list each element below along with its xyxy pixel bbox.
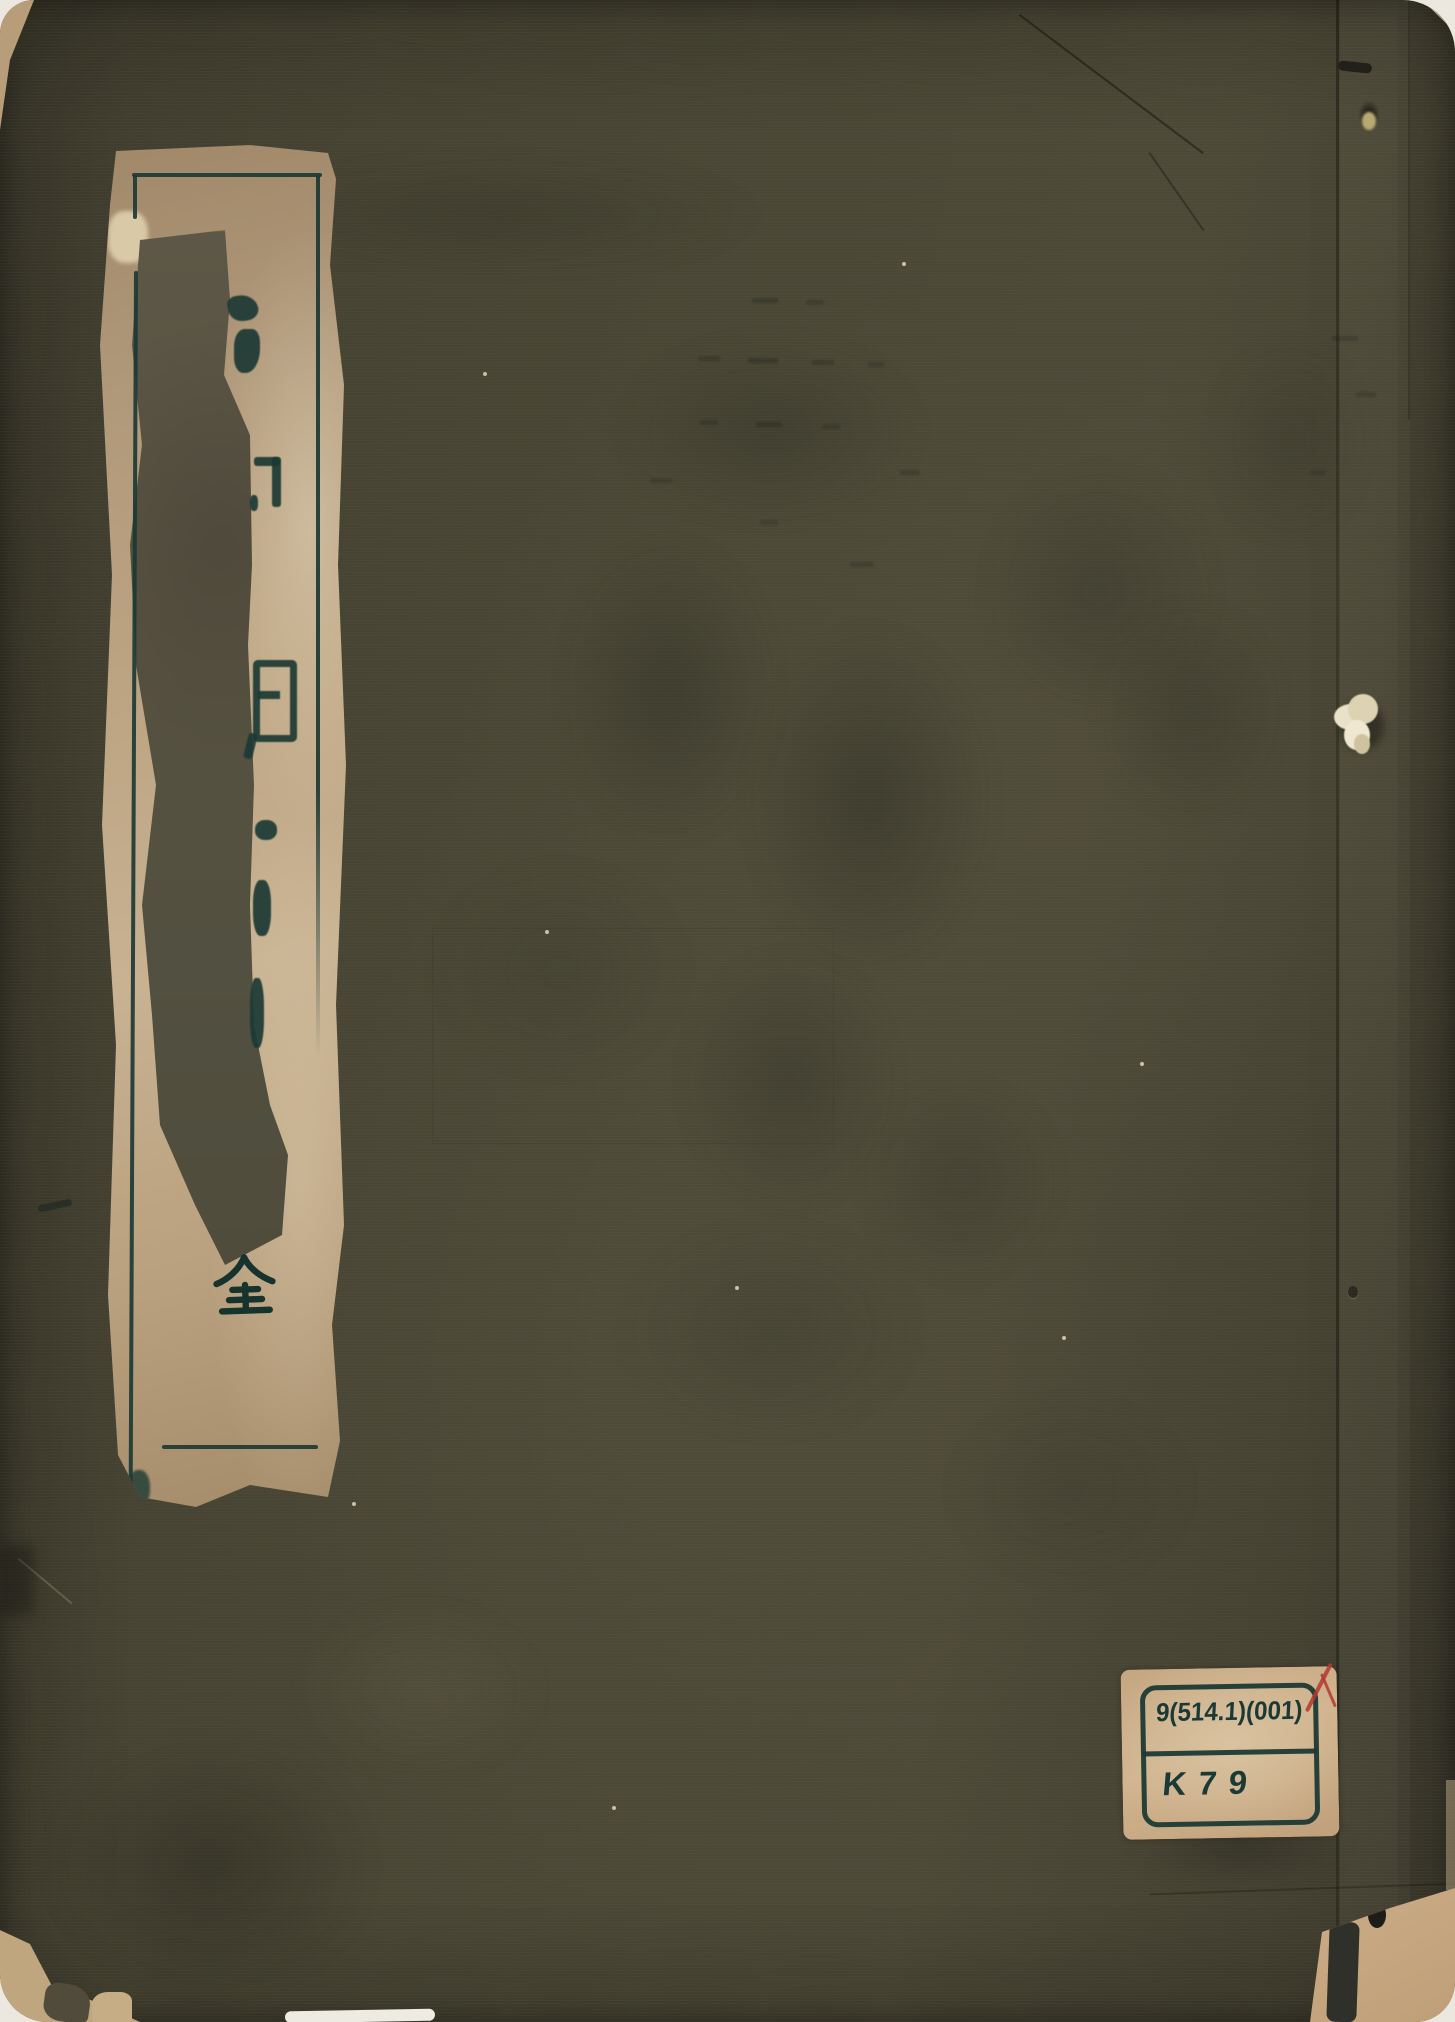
ghost-dash: [868, 362, 884, 367]
stain: [900, 1360, 1240, 1620]
label-border-left: [129, 271, 138, 1507]
ink-fragment: [234, 329, 260, 373]
label-abraded-area: [120, 230, 320, 1270]
title-label-strip: [100, 145, 350, 1507]
ink-fragment: [255, 820, 277, 840]
page-impression-outline: [432, 928, 834, 1144]
label-border-left-upper: [133, 175, 137, 219]
binding-hole-mid: [1348, 1286, 1358, 1298]
edge-crease-line: [1408, 0, 1410, 420]
bottom-edge-sliver: [285, 2009, 435, 2022]
ghost-dash: [822, 424, 840, 429]
ink-fragment: [253, 660, 297, 742]
quan-character: [211, 1252, 279, 1316]
book-cover: 9(514.1)(001) K79: [0, 0, 1455, 2022]
binding-stitch-bottom: [1326, 1922, 1359, 2022]
ghost-dash: [650, 478, 672, 483]
paper-speck: [612, 1806, 616, 1810]
ink-fragment: [250, 978, 264, 1048]
thread-blob: [1348, 694, 1378, 724]
paper-speck: [483, 372, 487, 376]
binding-tuft-small: [1362, 112, 1376, 130]
edge-wear-sliver: [1446, 1780, 1455, 1890]
spine-crease-highlight: [1340, 0, 1410, 2022]
paper-speck: [352, 1502, 356, 1506]
ink-fragment: [226, 293, 260, 324]
label-border-bottom: [162, 1445, 318, 1449]
ghost-dash: [756, 422, 782, 427]
binding-thread-tuft: [1334, 694, 1386, 756]
ink-fragment: [250, 495, 258, 511]
edge-smudge: [0, 1545, 34, 1615]
ghost-dash: [698, 356, 720, 361]
stain: [0, 1700, 420, 2022]
ghost-dash: [812, 360, 834, 365]
label-border-right: [316, 175, 320, 1055]
ink-fragment: [253, 880, 271, 936]
call-number-line1: 9(514.1)(001): [1128, 1694, 1330, 1729]
scanner-background: 9(514.1)(001) K79: [0, 0, 1455, 2022]
paper-speck: [1062, 1336, 1066, 1340]
ghost-dash: [806, 300, 824, 305]
ghost-dash: [748, 358, 778, 363]
paper-speck: [735, 1286, 739, 1290]
paper-speck: [545, 930, 549, 934]
paper-speck: [1140, 1062, 1144, 1066]
label-border-top: [132, 173, 322, 177]
call-number-line2: K79: [1161, 1763, 1261, 1803]
ghost-dash: [1310, 470, 1326, 475]
ghost-dash: [760, 520, 778, 525]
corner-wear-chip: [92, 1992, 132, 2022]
ghost-dash: [900, 470, 920, 475]
stain: [1060, 560, 1320, 860]
ink-fragment: [272, 457, 281, 507]
ink-fragment: [258, 691, 280, 699]
thread-blob: [1354, 734, 1370, 754]
ghost-dash: [752, 298, 778, 303]
ghost-dash: [700, 420, 718, 425]
call-number-label: 9(514.1)(001) K79: [1121, 1666, 1340, 1840]
paper-speck: [902, 262, 906, 266]
ghost-dash: [850, 562, 874, 567]
